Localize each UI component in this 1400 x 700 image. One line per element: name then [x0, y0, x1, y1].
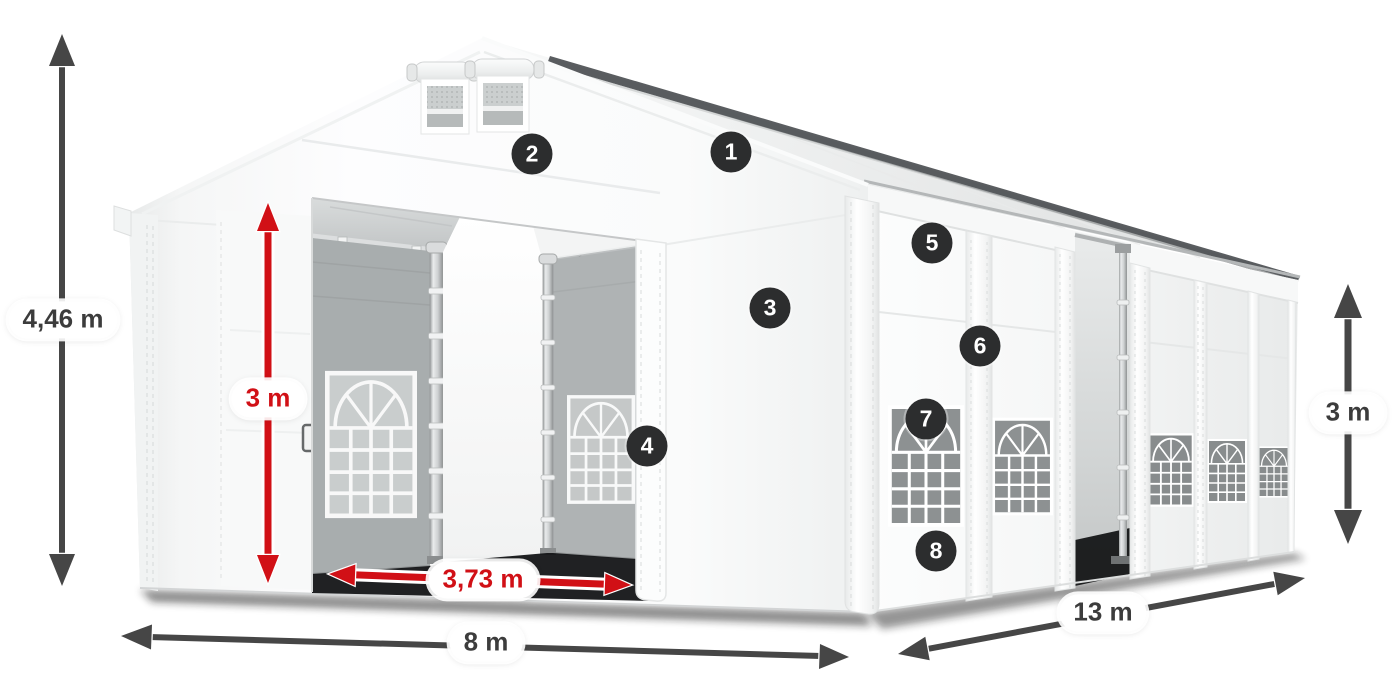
hotspot-6[interactable]: 6: [960, 326, 1001, 367]
interior-left-wall: [312, 238, 430, 574]
hotspot-1[interactable]: 1: [711, 132, 752, 173]
front-left-corner: [129, 213, 158, 591]
side-height-label: 3 m: [1312, 394, 1385, 431]
side-door-opening: [1075, 232, 1135, 586]
hotspot-8[interactable]: 8: [916, 531, 957, 572]
entrance-width-label: 3,73 m: [429, 561, 538, 598]
side-window-3: [1149, 434, 1193, 505]
front-right-corner: [845, 196, 879, 614]
side-length-label: 13 m: [1059, 594, 1146, 631]
interior-window-right: [569, 397, 634, 502]
hotspot-3[interactable]: 3: [750, 288, 791, 329]
tent-illustration: [0, 0, 1400, 700]
entrance-opening: [312, 198, 650, 601]
tent-dimension-diagram: 4,46 m 3 m 3,73 m 8 m 13 m 3 m 1 2 3 4 5…: [0, 0, 1400, 700]
side-window-5: [1259, 447, 1289, 497]
side-window-4: [1208, 440, 1246, 502]
front-right-door-edge: [636, 239, 666, 601]
hotspot-4[interactable]: 4: [627, 426, 668, 467]
left-eave-tab: [114, 206, 131, 236]
entrance-height-label: 3 m: [232, 380, 305, 417]
interior-window-left: [327, 373, 414, 516]
hotspot-2[interactable]: 2: [512, 134, 553, 175]
total-height-label: 4,46 m: [9, 301, 118, 338]
hotspot-7[interactable]: 7: [906, 399, 947, 440]
side-window-2: [994, 419, 1052, 514]
entrance-see-through: [443, 217, 547, 562]
hotspot-5[interactable]: 5: [912, 223, 953, 264]
front-width-label: 8 m: [450, 624, 523, 661]
